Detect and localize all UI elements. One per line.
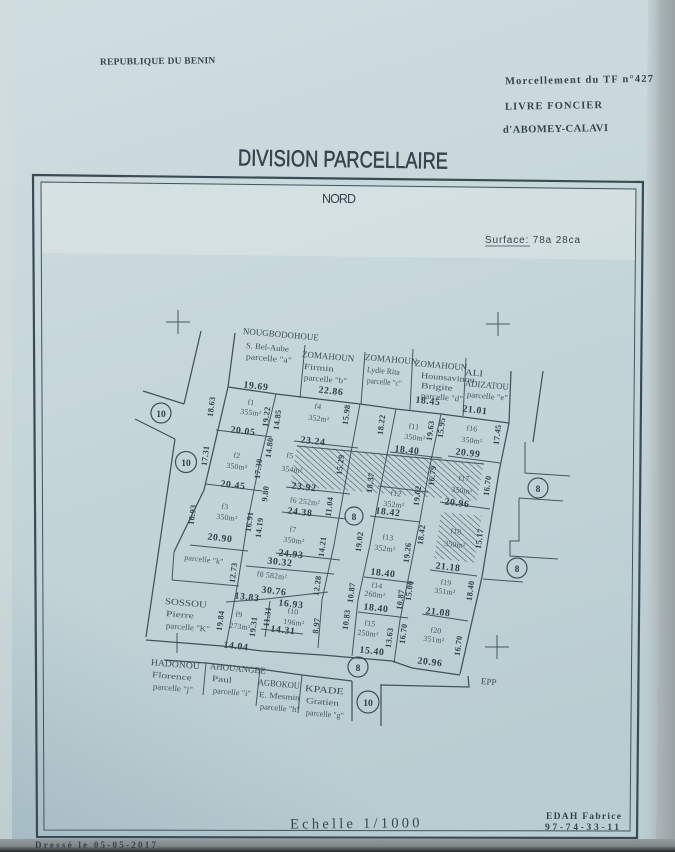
svg-text:NORD: NORD (322, 192, 356, 206)
svg-text:Paul: Paul (212, 674, 234, 685)
svg-text:9.80: 9.80 (260, 485, 271, 502)
svg-text:d'ABOMEY-CALAVI: d'ABOMEY-CALAVI (503, 123, 608, 136)
svg-text:8: 8 (536, 485, 541, 495)
svg-text:f7: f7 (289, 525, 297, 535)
svg-text:10: 10 (363, 699, 373, 709)
svg-text:f15: f15 (364, 618, 376, 628)
svg-text:f10: f10 (287, 606, 299, 616)
svg-text:8.97: 8.97 (311, 617, 322, 634)
svg-text:f9: f9 (235, 610, 243, 620)
svg-text:Surface: 78a 28ca: Surface: 78a 28ca (485, 235, 580, 246)
svg-text:ALI: ALI (465, 367, 484, 379)
svg-text:f13: f13 (382, 532, 394, 542)
svg-text:f1: f1 (247, 398, 255, 408)
svg-text:f4: f4 (314, 402, 322, 412)
svg-text:EDAH Fabrice: EDAH Fabrice (546, 812, 621, 822)
svg-text:f16: f16 (466, 423, 478, 433)
svg-text:8: 8 (352, 513, 357, 523)
svg-text:f12: f12 (390, 488, 402, 498)
svg-text:f2: f2 (233, 451, 241, 461)
svg-text:EPP: EPP (481, 676, 497, 687)
svg-text:f18: f18 (450, 526, 462, 536)
svg-text:f11: f11 (408, 421, 420, 431)
svg-text:LIVRE FONCIER: LIVRE FONCIER (505, 100, 603, 113)
svg-text:8: 8 (515, 565, 520, 575)
svg-text:10: 10 (156, 410, 166, 420)
svg-text:DIVISION PARCELLAIRE: DIVISION PARCELLAIRE (238, 144, 448, 173)
svg-text:Echelle 1/1000: Echelle 1/1000 (290, 815, 421, 832)
svg-text:REPUBLIQUE DU BENIN: REPUBLIQUE DU BENIN (100, 56, 216, 68)
svg-text:f17: f17 (458, 473, 470, 483)
svg-text:8: 8 (356, 664, 361, 674)
svg-text:f3: f3 (221, 502, 229, 512)
svg-text:97-74-33-11: 97-74-33-11 (545, 823, 619, 833)
svg-text:10: 10 (181, 459, 191, 469)
svg-text:f5: f5 (286, 451, 294, 461)
svg-text:Dressé le 05-05-2017: Dressé le 05-05-2017 (35, 840, 157, 850)
